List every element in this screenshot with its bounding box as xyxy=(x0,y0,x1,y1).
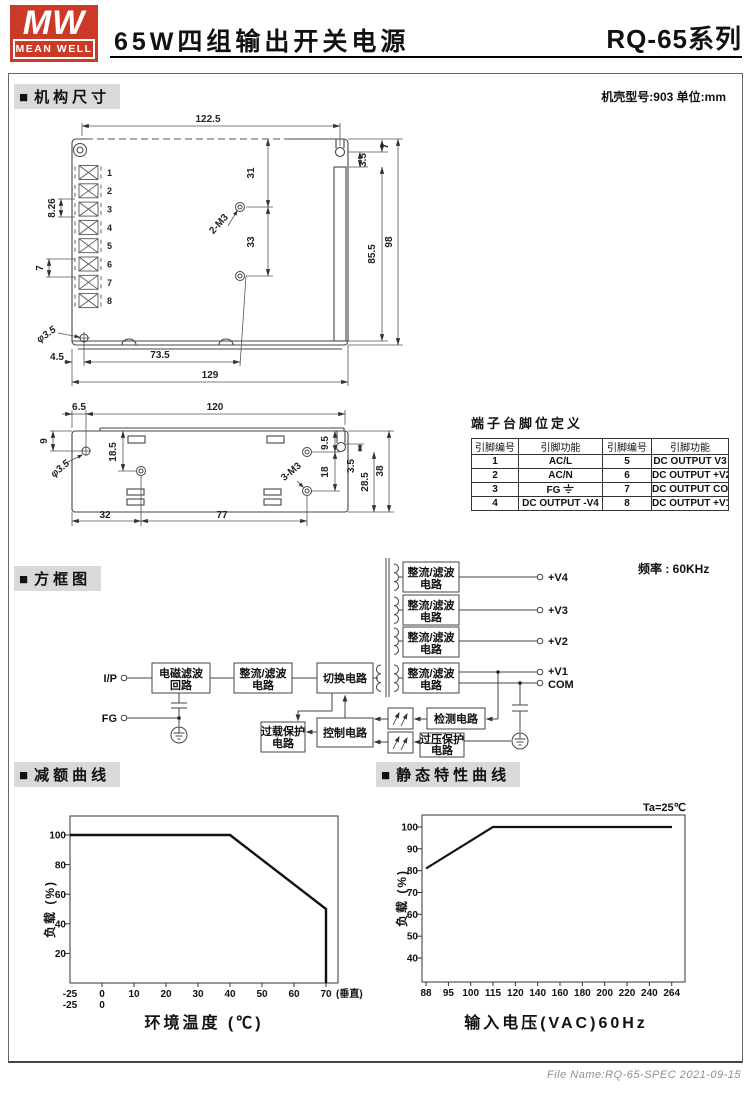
x-tick: 40 xyxy=(224,989,236,1000)
output-rectifier-block: 电路 xyxy=(420,678,443,692)
ovp-block: 过压保护 xyxy=(420,732,464,746)
dimension-lines xyxy=(50,410,394,526)
y-tick: 50 xyxy=(407,932,419,943)
earth-ground-icon xyxy=(171,727,187,743)
dim-label: 77 xyxy=(216,510,228,521)
dim-label: 122.5 xyxy=(195,114,220,125)
pin-callout: 7 xyxy=(107,278,112,288)
static-curve xyxy=(426,827,672,869)
x-tick-row2: -25 xyxy=(63,1000,78,1011)
control-block: 控制电路 xyxy=(323,726,368,740)
x-axis-label: 输入电压(VAC)60Hz xyxy=(464,1013,648,1032)
olp-block: 电路 xyxy=(272,736,295,750)
output-rectifier-block: 整流/滤波 xyxy=(406,666,455,680)
dim-label: 7 xyxy=(35,265,46,271)
x-tick: 220 xyxy=(619,988,636,999)
output-rectifier-block: 电路 xyxy=(420,642,443,656)
dim-label: 3.5 xyxy=(358,153,369,167)
x-tick: 95 xyxy=(443,988,455,999)
fg-terminal-label: FG xyxy=(102,713,117,725)
pin-callout: 8 xyxy=(107,296,112,306)
y-tick: 100 xyxy=(401,823,418,834)
x-tick: 160 xyxy=(552,988,569,999)
rectifier-filter-block: 电路 xyxy=(252,678,275,692)
output-rectifier-block: 电路 xyxy=(420,577,443,591)
dim-label: 9 xyxy=(39,438,50,444)
x-tick: 88 xyxy=(420,988,432,999)
transformer-icon xyxy=(377,558,399,697)
block-boxes xyxy=(152,562,485,757)
pin-callout: 6 xyxy=(107,260,112,270)
y-tick: 20 xyxy=(55,949,67,960)
y-axis-label: 负载 (%) xyxy=(42,880,57,938)
y-tick: 90 xyxy=(407,844,419,855)
output-rectifier-block: 整流/滤波 xyxy=(406,565,455,579)
dim-label: 18.5 xyxy=(108,442,119,462)
rectifier-filter-block: 整流/滤波 xyxy=(238,666,287,680)
dim-label: 73.5 xyxy=(150,350,170,361)
dimension-lines xyxy=(46,123,403,386)
y-tick: 100 xyxy=(49,831,66,842)
x-tick: 120 xyxy=(507,988,524,999)
y-tick: 80 xyxy=(55,860,67,871)
static-chart: Ta=25℃ 40 50 60 70 80 90 100 88 95 100 1… xyxy=(394,802,686,1032)
dim-label: 129 xyxy=(202,370,219,381)
output-label-v1: +V1 xyxy=(548,666,568,678)
pin-callout: 2 xyxy=(107,186,112,196)
datasheet-page: { "header": { "logo_mw": "MW", "logo_bra… xyxy=(0,0,750,1095)
detection-block: 检测电路 xyxy=(434,712,479,726)
pin-callout: 4 xyxy=(107,223,112,233)
x-tick: 264 xyxy=(663,988,680,999)
output-label-v2: +V2 xyxy=(548,636,568,648)
dim-label: φ3.5 xyxy=(35,324,59,345)
emi-filter-block: 电磁滤波 xyxy=(159,666,204,680)
dim-label: 4.5 xyxy=(50,352,64,363)
dim-label: 120 xyxy=(207,402,224,413)
terminal-block: 1 2 3 4 5 6 7 8 xyxy=(75,166,112,308)
x-tick: 0 xyxy=(99,989,105,1000)
x-tick: -25 xyxy=(63,989,78,1000)
output-rectifier-block: 电路 xyxy=(420,610,443,624)
derating-curve xyxy=(70,835,326,983)
olp-block: 过载保护 xyxy=(261,724,305,738)
x-tick: 50 xyxy=(256,989,268,1000)
output-label-v3: +V3 xyxy=(548,605,568,617)
dim-label: 7 xyxy=(380,143,391,149)
x-tick: 115 xyxy=(485,988,502,999)
dim-label: 33 xyxy=(246,236,257,248)
block-diagram: I/P FG 电磁滤波 回路 整流/滤波 电路 切换电路 整流/滤波 电路 整流… xyxy=(102,558,574,757)
x-tick: 180 xyxy=(574,988,591,999)
x-tick: 240 xyxy=(641,988,658,999)
x-tick: 20 xyxy=(160,989,172,1000)
dim-label: 98 xyxy=(384,236,395,248)
earth-ground-icon xyxy=(512,733,528,749)
line-art: 1 2 3 4 5 6 7 8 xyxy=(0,0,750,1095)
dim-label: 18 xyxy=(320,466,331,478)
dim-label: 31 xyxy=(246,167,257,179)
dim-label: 3-M3 xyxy=(279,460,304,483)
dim-label: 28.5 xyxy=(360,472,371,492)
y-tick: 40 xyxy=(407,954,419,965)
output-label-v4: +V4 xyxy=(548,572,569,584)
file-note: File Name:RQ-65-SPEC 2021-09-15 xyxy=(547,1069,741,1081)
dim-label: 8.26 xyxy=(47,198,58,218)
dim-label: 85.5 xyxy=(367,244,378,264)
x-tick: 140 xyxy=(529,988,546,999)
dim-label: 9.5 xyxy=(320,436,331,450)
y-axis-label: 负载 (%) xyxy=(394,869,409,927)
ta-annotation: Ta=25℃ xyxy=(643,802,686,814)
pin-callout: 5 xyxy=(107,241,112,251)
dim-label: 3.5 xyxy=(346,459,357,473)
dim-label: 38 xyxy=(375,465,386,477)
input-terminal-label: I/P xyxy=(104,673,117,685)
x-tick: 10 xyxy=(128,989,140,1000)
dim-label: 6.5 xyxy=(72,402,86,413)
dim-label: 32 xyxy=(99,510,111,521)
mechanical-top-view: 1 2 3 4 5 6 7 8 xyxy=(35,114,403,386)
mounting-note: (垂直) xyxy=(336,987,363,1000)
x-tick-row2: 0 xyxy=(99,1000,105,1011)
mounting-holes xyxy=(74,144,245,345)
x-tick: 100 xyxy=(462,988,479,999)
pin-callout: 1 xyxy=(107,168,112,178)
mechanical-side-view: 6.5 120 9 18.5 φ3.5 9.5 18 3.5 28.5 38 3… xyxy=(39,402,394,526)
switching-block: 切换电路 xyxy=(323,671,368,685)
ovp-block: 电路 xyxy=(431,743,454,757)
derating-chart: 20 40 60 80 100 -25 0 10 20 30 40 50 60 … xyxy=(42,816,363,1032)
output-rectifier-block: 整流/滤波 xyxy=(406,598,455,612)
x-tick: 200 xyxy=(596,988,613,999)
output-label-com: COM xyxy=(548,679,574,691)
x-tick: 30 xyxy=(192,989,204,1000)
x-axis-label: 环境温度 (℃) xyxy=(144,1013,263,1032)
pin-callout: 3 xyxy=(107,205,112,215)
x-tick: 70 xyxy=(320,989,332,1000)
output-rectifier-block: 整流/滤波 xyxy=(406,630,455,644)
dim-label: 2-M3 xyxy=(207,212,231,237)
x-tick: 60 xyxy=(288,989,300,1000)
emi-filter-block: 回路 xyxy=(170,678,193,692)
